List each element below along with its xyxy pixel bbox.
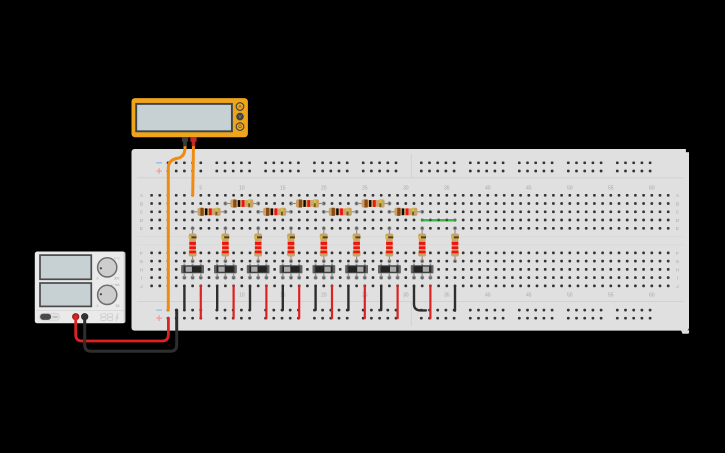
svg-text:D: D <box>676 218 680 224</box>
svg-text:Ω: Ω <box>238 124 242 129</box>
svg-text:55: 55 <box>608 292 614 298</box>
svg-text:45: 45 <box>526 186 532 192</box>
svg-text:20: 20 <box>321 292 327 298</box>
svg-text:60: 60 <box>649 186 655 192</box>
svg-text:60: 60 <box>649 292 655 298</box>
svg-text:↻ mA: ↻ mA <box>111 283 120 287</box>
svg-text:50: 50 <box>567 186 573 192</box>
svg-text:↻ V: ↻ V <box>114 256 121 260</box>
svg-text:55: 55 <box>608 186 614 192</box>
svg-text:D: D <box>140 218 144 224</box>
svg-text:F: F <box>140 251 143 257</box>
svg-text:B: B <box>140 201 143 207</box>
svg-text:50: 50 <box>567 292 573 298</box>
svg-text:25: 25 <box>362 186 368 192</box>
svg-text:0: 0 <box>97 304 99 308</box>
svg-text:35: 35 <box>444 186 450 192</box>
svg-text:35: 35 <box>444 292 450 298</box>
svg-text:OFF: OFF <box>53 315 59 319</box>
svg-text:15: 15 <box>280 186 286 192</box>
svg-text:G: G <box>676 259 680 265</box>
svg-text:10: 10 <box>239 186 245 192</box>
svg-text:40: 40 <box>485 292 491 298</box>
svg-text:I: I <box>677 276 678 282</box>
svg-text:C: C <box>676 210 680 216</box>
svg-text:30: 30 <box>403 292 409 298</box>
svg-text:10: 10 <box>239 292 245 298</box>
svg-text:C: C <box>140 210 144 216</box>
svg-text:30: 30 <box>403 186 409 192</box>
svg-text:H: H <box>676 267 680 273</box>
svg-text:G: G <box>140 259 144 265</box>
svg-text:40: 40 <box>485 186 491 192</box>
svg-text:0: 0 <box>97 277 99 281</box>
svg-text:B: B <box>676 201 679 207</box>
svg-text:E: E <box>676 226 679 232</box>
svg-text:20: 20 <box>321 186 327 192</box>
svg-text:F: F <box>676 251 679 257</box>
svg-text:5: 5 <box>199 186 202 192</box>
svg-text:I: I <box>141 276 142 282</box>
svg-text:45: 45 <box>526 292 532 298</box>
svg-text:E: E <box>140 226 143 232</box>
svg-text:H: H <box>140 267 144 273</box>
svg-text:30V: 30V <box>114 277 121 281</box>
